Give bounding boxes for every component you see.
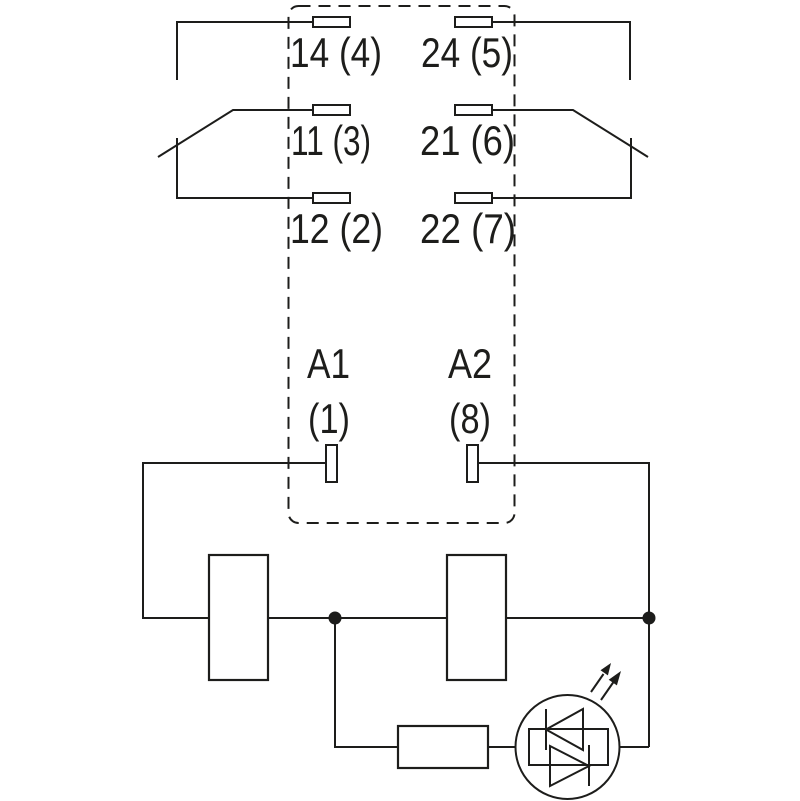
coil-section: A1 A2 (1) (8) bbox=[143, 340, 649, 747]
terminal-pad-a1-icon bbox=[326, 445, 337, 482]
led-body-rect bbox=[529, 729, 608, 765]
coil-module-box-right-icon bbox=[447, 555, 506, 680]
terminal-pad-21-icon bbox=[455, 105, 492, 115]
pole1-common-arm-icon bbox=[158, 110, 313, 157]
label-coil-pin1: (1) bbox=[308, 395, 350, 442]
schematic-canvas: 14 (4) 24 (5) 11 (3) 21 (6) 12 (2) 22 (7… bbox=[0, 0, 800, 801]
terminal-pad-11-icon bbox=[313, 105, 350, 115]
coil-module-box-left-icon bbox=[209, 555, 268, 680]
emission-arrow-shaft bbox=[591, 674, 604, 692]
resistor-icon bbox=[398, 726, 488, 768]
contact-section: 14 (4) 24 (5) 11 (3) 21 (6) 12 (2) 22 (7… bbox=[158, 17, 648, 252]
light-emission-arrows-icon bbox=[591, 663, 621, 700]
led-indicator-icon bbox=[516, 663, 622, 799]
emission-arrow-shaft bbox=[601, 682, 614, 700]
label-coil-pin8: (8) bbox=[449, 395, 491, 442]
junction-dot-icon bbox=[329, 612, 342, 625]
bottom-circuit bbox=[209, 555, 656, 799]
junction-dot-icon bbox=[643, 612, 656, 625]
terminal-pad-12-icon bbox=[313, 193, 350, 203]
relay-enclosure-dashed-outline-icon bbox=[289, 6, 515, 523]
relay-schematic: 14 (4) 24 (5) 11 (3) 21 (6) 12 (2) 22 (7… bbox=[0, 0, 800, 801]
label-terminal-22: 22 (7) bbox=[420, 205, 516, 252]
terminal-pad-14-icon bbox=[313, 17, 350, 27]
led-branch-wire-left bbox=[335, 618, 398, 747]
emission-arrow-head bbox=[609, 671, 621, 685]
label-terminal-24: 24 (5) bbox=[421, 29, 513, 76]
label-terminal-21: 21 (6) bbox=[420, 117, 515, 164]
label-terminal-12: 12 (2) bbox=[290, 205, 383, 252]
label-coil-a1: A1 bbox=[307, 340, 350, 387]
label-terminal-11: 11 (3) bbox=[291, 117, 371, 164]
terminal-pad-a2-icon bbox=[467, 445, 478, 482]
terminal-pad-24-icon bbox=[455, 17, 492, 27]
label-terminal-14: 14 (4) bbox=[290, 29, 382, 76]
terminal-pad-22-icon bbox=[455, 193, 492, 203]
emission-arrow-head bbox=[601, 663, 612, 675]
label-coil-a2: A2 bbox=[448, 340, 492, 387]
led-circle bbox=[516, 695, 620, 799]
